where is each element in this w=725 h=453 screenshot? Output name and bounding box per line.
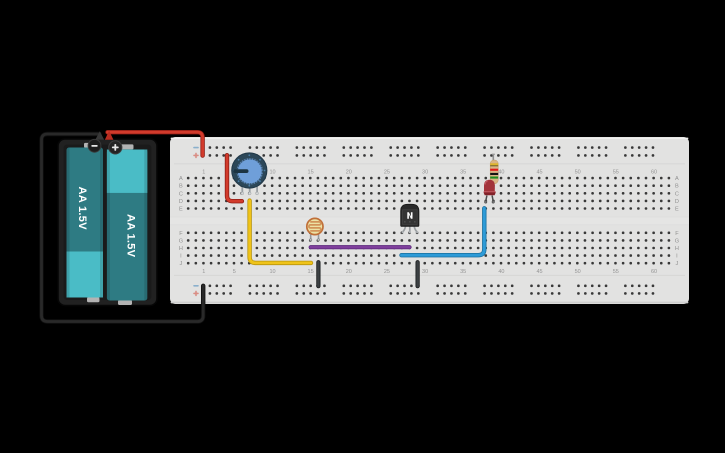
svg-text:C: C: [179, 191, 183, 197]
svg-text:55: 55: [613, 269, 619, 275]
svg-text:55: 55: [613, 170, 619, 176]
svg-text:F: F: [675, 231, 679, 237]
svg-text:H: H: [675, 246, 679, 252]
svg-text:35: 35: [460, 170, 466, 176]
svg-text:30: 30: [422, 269, 428, 275]
svg-text:40: 40: [498, 269, 504, 275]
svg-text:D: D: [179, 199, 183, 205]
svg-text:5: 5: [233, 269, 236, 275]
svg-text:25: 25: [384, 269, 390, 275]
svg-text:B: B: [675, 184, 679, 190]
svg-text:20: 20: [346, 170, 352, 176]
svg-text:C: C: [675, 191, 679, 197]
svg-text:B: B: [179, 184, 183, 190]
svg-text:1: 1: [202, 170, 205, 176]
svg-text:AA 1.5V: AA 1.5V: [76, 187, 88, 231]
svg-text:10: 10: [269, 269, 275, 275]
svg-text:20: 20: [346, 269, 352, 275]
svg-text:15: 15: [308, 170, 314, 176]
svg-text:15: 15: [308, 269, 314, 275]
svg-text:E: E: [675, 207, 679, 213]
svg-text:F: F: [179, 231, 183, 237]
svg-text:10: 10: [269, 170, 275, 176]
svg-text:50: 50: [575, 170, 581, 176]
svg-text:H: H: [179, 246, 183, 252]
svg-text:A: A: [675, 176, 679, 182]
svg-text:G: G: [179, 238, 183, 244]
svg-text:45: 45: [536, 170, 542, 176]
svg-text:D: D: [675, 199, 679, 205]
svg-text:J: J: [180, 261, 183, 267]
svg-text:45: 45: [536, 269, 542, 275]
svg-text:40: 40: [498, 170, 504, 176]
svg-text:G: G: [675, 238, 679, 244]
svg-text:AA 1.5V: AA 1.5V: [124, 214, 136, 258]
svg-text:25: 25: [384, 170, 390, 176]
svg-text:1: 1: [202, 269, 205, 275]
svg-text:50: 50: [575, 269, 581, 275]
svg-text:J: J: [676, 261, 679, 267]
svg-text:A: A: [179, 176, 183, 182]
svg-text:60: 60: [651, 269, 657, 275]
svg-text:60: 60: [651, 170, 657, 176]
svg-text:35: 35: [460, 269, 466, 275]
svg-text:E: E: [179, 207, 183, 213]
svg-text:30: 30: [422, 170, 428, 176]
